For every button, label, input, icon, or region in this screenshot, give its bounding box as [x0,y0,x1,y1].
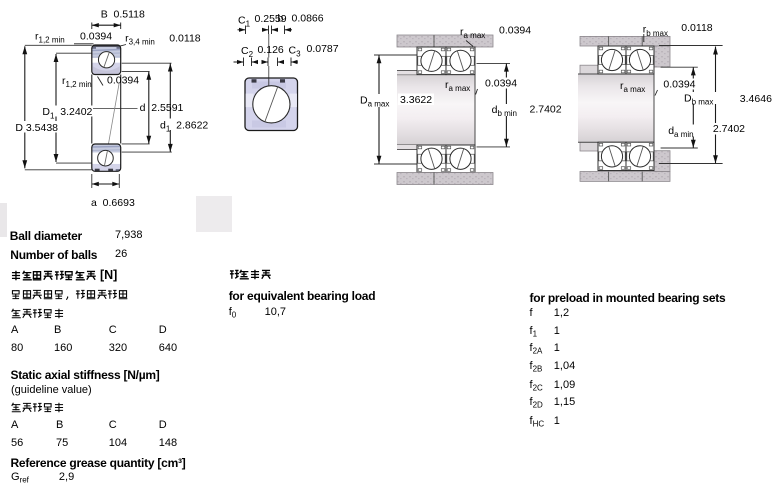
svg-text:D1​ 3.2402: D1​ 3.2402 [42,106,92,120]
svg-text:B 0.5118: B 0.5118 [101,9,145,21]
svg-text:0.0394: 0.0394 [499,25,531,37]
svg-text:C3​: C3​ [289,45,302,59]
svg-text:r1,2 min​: r1,2 min​ [35,30,65,44]
svg-text:3.3622: 3.3622 [400,94,432,106]
svg-text:0.0866: 0.0866 [292,13,324,25]
svg-text:C1​: C1​ [238,15,251,29]
svg-text:0.0394: 0.0394 [107,74,139,86]
svg-text:r3,4 min​: r3,4 min​ [125,32,155,46]
svg-text:C2​: C2​ [241,45,254,59]
svg-text:0.0394: 0.0394 [80,30,112,42]
svg-text:b: b [278,13,284,25]
svg-text:3.4646: 3.4646 [740,93,772,105]
svg-text:0.0118: 0.0118 [169,32,200,44]
svg-text:0.0394: 0.0394 [663,79,695,91]
svg-text:0.126: 0.126 [258,44,284,56]
svg-text:0.0118: 0.0118 [681,22,712,34]
svg-text:0.0394: 0.0394 [485,78,517,90]
svg-text:0.0787: 0.0787 [307,43,339,55]
svg-text:2.7402: 2.7402 [713,123,745,135]
svg-text:d 2.5591: d 2.5591 [140,102,184,114]
svg-text:2.7402: 2.7402 [530,104,562,116]
svg-text:rb max​: rb max​ [643,24,668,38]
svg-text:ra max​: ra max​ [460,26,485,40]
svg-text:D 3.5438: D 3.5438 [15,122,58,134]
svg-text:r1,2 min​: r1,2 min​ [62,75,92,89]
svg-text:a 0.6693: a 0.6693 [91,197,135,209]
